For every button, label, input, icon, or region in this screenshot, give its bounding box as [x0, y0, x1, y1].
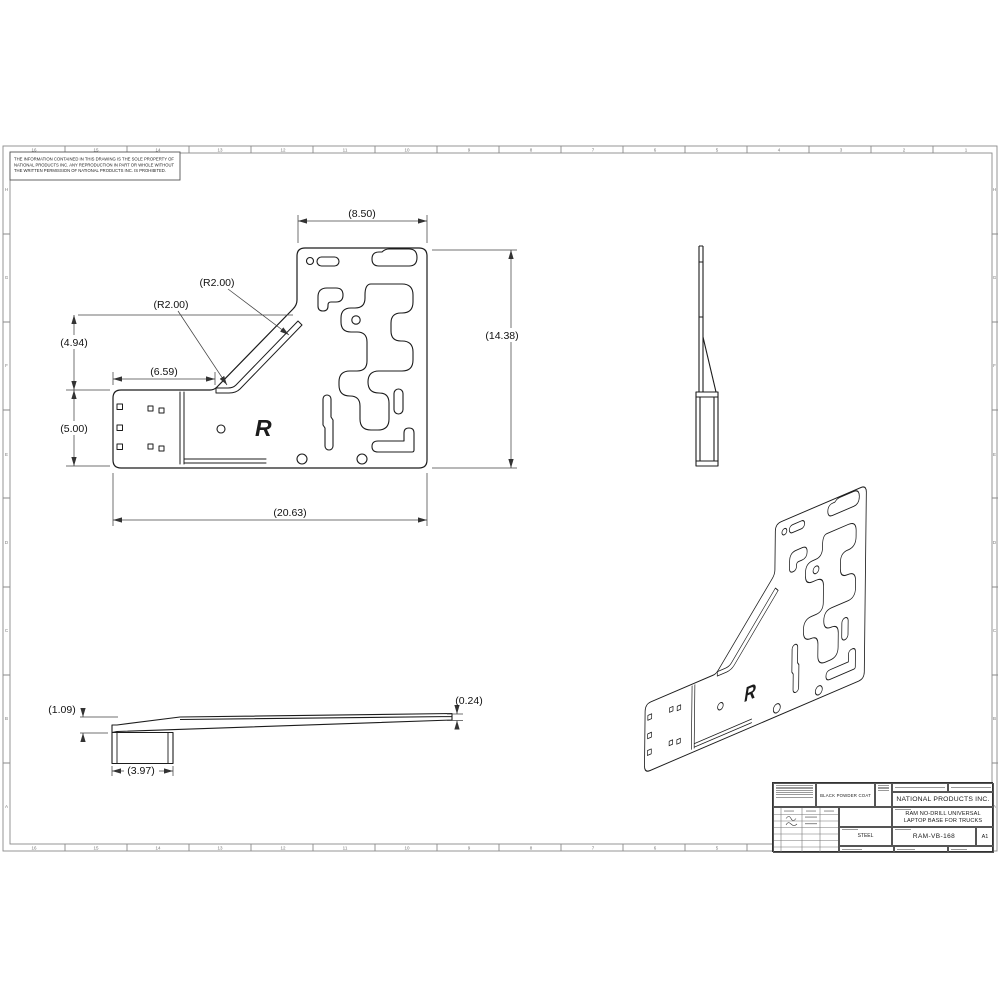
side-channel-walls	[696, 397, 718, 461]
dim-label-850: (8.50)	[348, 208, 375, 220]
plate-cutouts	[317, 249, 417, 452]
fine-print-line	[878, 785, 889, 786]
central-cutout	[339, 284, 413, 430]
fine-print-line	[878, 790, 889, 791]
front-jaw	[112, 733, 173, 764]
date-mark	[805, 823, 817, 824]
leader-r200-upper	[228, 289, 289, 335]
zone-label: 7	[592, 845, 595, 850]
zone-label: C	[993, 628, 997, 633]
title-line-2: LAPTOP BASE FOR TRUCKS	[904, 818, 982, 825]
approvals-grid-lines	[774, 808, 839, 853]
zone-label: 5	[716, 147, 719, 152]
zone-label: 6	[654, 147, 657, 152]
arm-fold-lines	[180, 392, 266, 464]
front-dimension-labels: (1.09) (3.97) (0.24)	[48, 695, 482, 777]
zone-label: A	[5, 804, 8, 809]
dim-label-109: (1.09)	[48, 704, 75, 716]
part-number: RAM-VB-168	[913, 833, 955, 840]
spare-cell	[839, 807, 892, 827]
part-number-cell: RAM-VB-168	[892, 827, 976, 846]
zone-label: B	[993, 716, 996, 721]
dim-label-024: (0.24)	[455, 695, 482, 707]
sheet-cell	[948, 846, 994, 853]
zone-label: 11	[343, 147, 348, 152]
zone-label: 13	[217, 147, 223, 152]
side-gusset	[703, 337, 716, 392]
round-holes	[217, 258, 367, 465]
zone-label: 12	[280, 147, 286, 152]
plan-dimension-labels: (8.50) (14.38) (20.63) (4.94) (5.00) (6.…	[60, 208, 518, 519]
scale-cell	[839, 846, 894, 853]
zone-label: D	[993, 540, 997, 545]
zone-label: 4	[778, 147, 781, 152]
sheet-inner-border	[10, 153, 992, 844]
plan-dimensions	[56, 215, 523, 526]
keyhole-slot	[317, 257, 339, 266]
part-number-wrap: RAM-VB-168	[893, 830, 975, 842]
header-mark	[824, 811, 834, 812]
front-jaw-walls	[117, 733, 168, 764]
sheet-frame	[3, 146, 998, 851]
material-value-wrap: STEEL	[840, 830, 891, 842]
side-channel	[696, 392, 718, 466]
dim-label-500: (5.00)	[60, 423, 87, 435]
zone-label: 13	[217, 845, 223, 850]
zone-label: 5	[716, 845, 719, 850]
revision-header-cell	[948, 783, 994, 792]
header-mark	[784, 811, 794, 812]
material-value: STEEL	[858, 833, 874, 839]
leader-r200-lower	[178, 311, 227, 385]
dim-label-494: (4.94)	[60, 337, 87, 349]
weight-cell	[894, 846, 948, 853]
approvals-grid	[773, 807, 839, 853]
zone-ticks-left	[3, 234, 10, 763]
do-not-scale-cell	[892, 783, 948, 792]
proprietary-note: THE INFORMATION CONTAINED IN THIS DRAWIN…	[10, 152, 180, 180]
left-jog-slot	[323, 395, 333, 450]
dim-label-659: (6.59)	[150, 366, 177, 378]
fine-print-line	[842, 849, 862, 850]
dim-label-r200-lower: (R2.00)	[153, 299, 188, 311]
zone-label: G	[5, 275, 9, 280]
disclaimer-line: NATIONAL PRODUCTS INC. ANY REPRODUCTION …	[14, 162, 174, 167]
zone-label: H	[5, 187, 8, 192]
bend-flange	[216, 321, 302, 393]
fine-print-line	[897, 849, 915, 850]
front-profile	[112, 714, 452, 733]
revision-cell: A1	[976, 827, 994, 846]
front-view	[112, 714, 452, 764]
side-plate-edge	[699, 246, 703, 392]
clamp-holes	[117, 404, 164, 451]
zone-label: 9	[468, 845, 471, 850]
zone-label: 1	[965, 147, 968, 152]
fine-print-line	[776, 797, 813, 798]
title-block: BLACK POWDER COAT NATIONAL PRODUCTS INC.…	[772, 782, 993, 852]
zone-label: 12	[280, 845, 286, 850]
zone-label: 8	[530, 147, 533, 152]
zone-label: 8	[530, 845, 533, 850]
fine-print-line	[776, 792, 813, 793]
title-line-1: RAM NO-DRILL UNIVERSAL	[905, 811, 980, 818]
zone-label: D	[5, 540, 9, 545]
fine-print-line	[895, 787, 945, 788]
right-slot	[394, 389, 403, 414]
zone-label: 10	[404, 147, 410, 152]
zone-label: 2	[903, 147, 906, 152]
drawing-title: RAM NO-DRILL UNIVERSAL LAPTOP BASE FOR T…	[893, 810, 993, 825]
fine-print-line	[951, 787, 991, 788]
finish-cell: BLACK POWDER COAT	[816, 783, 875, 807]
title-cell: RAM NO-DRILL UNIVERSAL LAPTOP BASE FOR T…	[892, 807, 994, 827]
zone-label: 10	[404, 845, 410, 850]
date-mark	[805, 817, 817, 818]
zone-label: 3	[840, 147, 843, 152]
drawing-sheet: 16 15 14 13 12 11 10 9 8 7 6 5 4 3 2 1 1…	[0, 0, 1000, 1000]
revision-value: A1	[982, 834, 989, 840]
isometric-view	[644, 485, 866, 773]
zone-label: B	[5, 716, 8, 721]
fine-print-cell	[875, 783, 892, 807]
plan-view-part: R	[113, 248, 427, 468]
finish-value: BLACK POWDER COAT	[820, 793, 871, 798]
zone-label: G	[993, 275, 997, 280]
top-right-slot	[372, 249, 417, 266]
extension-lines	[66, 215, 517, 526]
fine-print-line	[878, 787, 889, 788]
header-mark	[806, 811, 816, 812]
zone-label: H	[993, 187, 996, 192]
disclaimer-line: THE INFORMATION CONTAINED IN THIS DRAWIN…	[14, 157, 174, 162]
dim-label-masks	[56, 328, 523, 435]
side-view	[696, 246, 718, 466]
material-cell: STEEL	[839, 827, 892, 846]
dim-label-r200-upper: (R2.00)	[199, 277, 234, 289]
zone-label: E	[5, 452, 8, 457]
disclaimer-line: THE WRITTEN PERMISSION OF NATIONAL PRODU…	[14, 168, 166, 173]
fine-print-line	[776, 794, 813, 795]
zone-label: 14	[155, 845, 161, 850]
dim-label-397: (3.97)	[127, 765, 154, 777]
dim-label-1438: (14.38)	[485, 330, 518, 342]
zone-label: 15	[93, 845, 99, 850]
sheet-outer-border	[3, 146, 997, 851]
zone-label: F	[993, 363, 996, 368]
ram-logo: R	[255, 415, 272, 441]
zone-ticks-top	[65, 146, 933, 153]
zone-label: 9	[468, 147, 471, 152]
hook-cutout	[318, 288, 343, 311]
company-name: NATIONAL PRODUCTS INC.	[896, 796, 989, 803]
tolerance-fine-print	[773, 783, 816, 807]
zone-label: 11	[343, 845, 348, 850]
zone-label: F	[5, 363, 8, 368]
fine-print-line	[776, 785, 813, 786]
zone-label: 16	[31, 845, 37, 850]
zone-label: 7	[592, 147, 595, 152]
fine-print-line	[776, 787, 813, 788]
fine-print-line	[951, 849, 967, 850]
bottom-hook-slot	[372, 428, 414, 452]
dim-label-2063: (20.63)	[273, 507, 306, 519]
company-cell: NATIONAL PRODUCTS INC.	[892, 792, 994, 807]
zone-label: 6	[654, 845, 657, 850]
zone-label: C	[5, 628, 9, 633]
fine-print-line	[776, 790, 813, 791]
zone-label: E	[993, 452, 996, 457]
